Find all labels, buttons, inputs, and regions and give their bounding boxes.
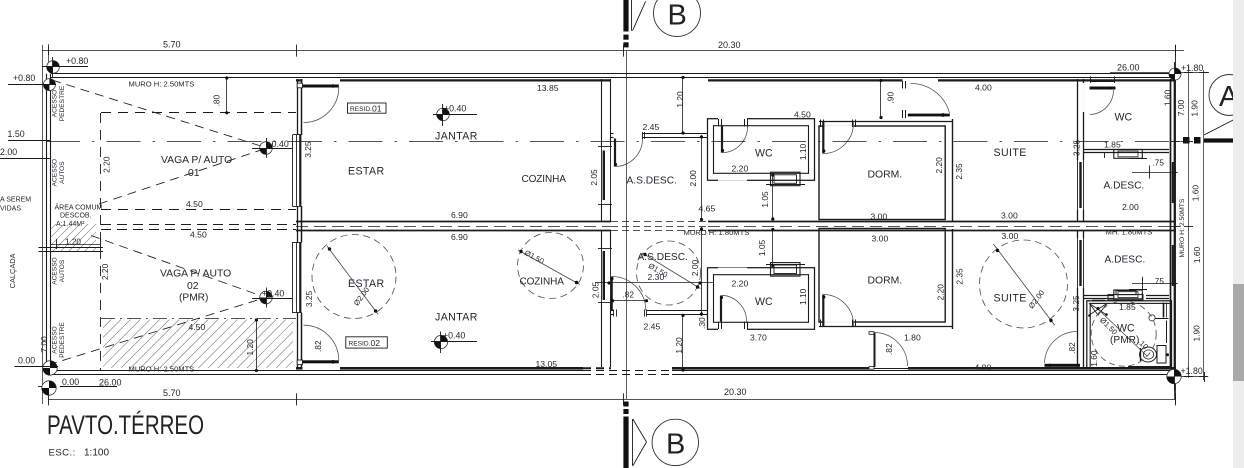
svg-text:WC: WC (1115, 111, 1133, 123)
svg-text:1.05: 1.05 (760, 191, 770, 208)
svg-text:.82: .82 (884, 343, 894, 355)
svg-text:0.00: 0.00 (18, 355, 35, 365)
svg-text:ACESSO: ACESSO (52, 257, 59, 284)
svg-text:.82: .82 (623, 291, 635, 300)
svg-text:ESTAR: ESTAR (348, 166, 385, 178)
svg-text:4.65: 4.65 (699, 204, 716, 214)
svg-text:2.05: 2.05 (589, 169, 599, 186)
svg-text:1.60: 1.60 (1190, 185, 1200, 202)
svg-text:6.90: 6.90 (451, 210, 468, 220)
svg-text:3.70: 3.70 (750, 333, 767, 343)
svg-text:B: B (666, 429, 685, 461)
svg-text:4.50: 4.50 (190, 230, 207, 240)
svg-text:.90: .90 (885, 92, 895, 104)
svg-text:.80: .80 (212, 94, 222, 106)
svg-text:1.10: 1.10 (798, 144, 808, 161)
svg-text:3.25: 3.25 (303, 141, 313, 158)
svg-text:2.00: 2.00 (0, 147, 17, 157)
svg-text:13.85: 13.85 (537, 83, 559, 93)
svg-text:ACESSO: ACESSO (52, 90, 59, 117)
svg-text:(PMR): (PMR) (1110, 335, 1139, 346)
svg-text:+0.80: +0.80 (13, 73, 35, 83)
svg-text:CALÇADA: CALÇADA (8, 253, 17, 288)
svg-text:3.25: 3.25 (304, 291, 314, 308)
svg-text:2.35: 2.35 (954, 163, 964, 180)
svg-text:DORM.: DORM. (868, 276, 903, 287)
svg-text:COZINHA: COZINHA (520, 277, 565, 288)
svg-text:MURO H: 2.50MTS: MURO H: 2.50MTS (1179, 198, 1186, 257)
svg-text:2.20: 2.20 (101, 156, 111, 173)
svg-text:1.60: 1.60 (1089, 350, 1099, 367)
svg-text:1.60: 1.60 (1192, 247, 1202, 264)
svg-text:0.00: 0.00 (62, 377, 79, 387)
svg-text:MH: 1.80MTS: MH: 1.80MTS (1106, 228, 1153, 237)
svg-text:02: 02 (371, 338, 381, 348)
svg-text:3.25: 3.25 (1071, 295, 1081, 312)
svg-text:1.85: 1.85 (1119, 302, 1136, 312)
svg-text:5.70: 5.70 (163, 39, 181, 49)
svg-text:JANTAR: JANTAR (435, 130, 478, 142)
svg-text:A.DESC.: A.DESC. (1105, 255, 1146, 266)
svg-text:7.00: 7.00 (39, 336, 49, 353)
svg-text:1.50: 1.50 (8, 129, 25, 139)
svg-text:7.00: 7.00 (1176, 100, 1186, 117)
svg-text:4.50: 4.50 (794, 110, 811, 120)
svg-text:COZINHA: COZINHA (522, 174, 567, 185)
svg-text:02: 02 (187, 281, 199, 292)
svg-text:1:100: 1:100 (84, 448, 109, 459)
svg-text:1.20: 1.20 (675, 91, 685, 108)
svg-text:AUTOS: AUTOS (59, 259, 66, 282)
svg-text:WC: WC (755, 147, 773, 159)
svg-text:RESID.: RESID. (349, 340, 371, 347)
svg-text:1.05: 1.05 (757, 240, 767, 257)
svg-text:DESCOB.: DESCOB. (60, 212, 92, 219)
svg-text:2.20: 2.20 (732, 278, 749, 288)
svg-text:4.00: 4.00 (975, 83, 992, 93)
svg-text:A.DESC.: A.DESC. (1104, 180, 1145, 191)
svg-text:+0.40: +0.40 (262, 289, 284, 299)
svg-text:4.50: 4.50 (186, 199, 203, 209)
svg-text:WC: WC (755, 296, 773, 308)
svg-text:DORM.: DORM. (868, 170, 903, 181)
svg-text:PEDESTRE: PEDESTRE (59, 85, 66, 121)
svg-text:+1.80: +1.80 (1181, 63, 1203, 73)
svg-text:WC: WC (1117, 322, 1135, 334)
svg-text:26.00: 26.00 (1117, 63, 1140, 73)
svg-text:VAGA P/ AUTO: VAGA P/ AUTO (161, 155, 232, 166)
svg-text:1.60: 1.60 (1163, 90, 1173, 107)
svg-text:3.00: 3.00 (872, 233, 889, 243)
svg-text:ESTAR: ESTAR (348, 278, 385, 290)
svg-text:1.20: 1.20 (674, 337, 684, 354)
svg-text:01: 01 (372, 103, 382, 113)
svg-text:20.30: 20.30 (724, 387, 747, 397)
svg-text:ESC.:: ESC.: (49, 448, 76, 459)
svg-text:.82: .82 (313, 340, 323, 352)
svg-text:SUITE: SUITE (994, 147, 1027, 159)
svg-text:B: B (668, 0, 687, 32)
svg-text:2.30: 2.30 (648, 272, 665, 282)
svg-text:A SEREM: A SEREM (0, 197, 31, 204)
svg-text:A:1.44M²: A:1.44M² (56, 221, 85, 228)
svg-text:+0.40: +0.40 (267, 139, 289, 149)
svg-text:3.25: 3.25 (1072, 139, 1082, 156)
svg-text:1.20: 1.20 (65, 237, 81, 246)
svg-text:2.00: 2.00 (1122, 202, 1139, 212)
svg-text:MURO H: 1.80MTS: MURO H: 1.80MTS (684, 228, 750, 237)
svg-text:2.20: 2.20 (935, 284, 945, 301)
svg-text:ACESSO: ACESSO (52, 326, 59, 353)
svg-text:1.90: 1.90 (1190, 100, 1200, 117)
svg-text:1.20: 1.20 (245, 339, 255, 356)
svg-text:.75: .75 (1153, 277, 1165, 286)
svg-text:+0.40: +0.40 (444, 103, 466, 113)
svg-text:.75: .75 (1153, 159, 1165, 168)
svg-text:2.45: 2.45 (643, 122, 660, 132)
svg-text:3.00: 3.00 (871, 211, 888, 221)
svg-text:2.05: 2.05 (591, 282, 601, 299)
svg-text:5.70: 5.70 (163, 388, 181, 398)
svg-text:SUITE: SUITE (994, 293, 1027, 305)
svg-text:MURO H: 2.50MTS: MURO H: 2.50MTS (129, 79, 195, 88)
svg-text:MURO H: 2.50MTS: MURO H: 2.50MTS (129, 365, 195, 374)
svg-text:3.00: 3.00 (1001, 211, 1018, 221)
svg-text:+1.80: +1.80 (1181, 366, 1203, 376)
svg-text:26.00: 26.00 (99, 378, 122, 388)
svg-text:2.20: 2.20 (934, 157, 944, 174)
svg-text:13.05: 13.05 (536, 359, 558, 369)
svg-text:A.S.DESC.: A.S.DESC. (638, 252, 688, 263)
svg-text:RESID.: RESID. (350, 106, 372, 113)
svg-text:A.S.DESC.: A.S.DESC. (627, 175, 677, 186)
svg-text:1.10: 1.10 (798, 288, 808, 305)
svg-text:01: 01 (188, 168, 200, 179)
svg-text:2.45: 2.45 (644, 321, 661, 331)
svg-text:+0.80: +0.80 (66, 56, 88, 66)
svg-text:VIDAS: VIDAS (0, 206, 21, 213)
svg-text:PAVTO.TÉRREO: PAVTO.TÉRREO (47, 410, 204, 440)
svg-text:1.85: 1.85 (1104, 139, 1121, 149)
svg-text:1.90: 1.90 (1192, 325, 1202, 342)
svg-text:4.50: 4.50 (189, 322, 206, 332)
svg-text:+0.40: +0.40 (443, 330, 465, 340)
svg-text:AUTOS: AUTOS (59, 161, 66, 184)
svg-text:.82: .82 (1067, 342, 1077, 354)
svg-text:2.20: 2.20 (732, 163, 749, 173)
svg-text:3.00: 3.00 (1002, 231, 1019, 241)
svg-text:4.80: 4.80 (975, 362, 992, 372)
svg-text:2.35: 2.35 (954, 268, 964, 285)
svg-text:2.00: 2.00 (690, 260, 700, 277)
svg-text:.30: .30 (697, 317, 707, 329)
svg-text:(PMR): (PMR) (179, 293, 208, 304)
svg-text:ACESSO: ACESSO (52, 159, 59, 186)
svg-text:ÁREA COMUM: ÁREA COMUM (55, 203, 103, 212)
svg-text:1.80: 1.80 (904, 333, 921, 343)
svg-text:JANTAR: JANTAR (435, 311, 478, 323)
svg-text:2.20: 2.20 (100, 263, 110, 280)
svg-text:20.30: 20.30 (718, 40, 741, 50)
svg-text:2.00: 2.00 (688, 170, 698, 187)
svg-text:PEDESTRE: PEDESTRE (59, 322, 66, 358)
svg-text:6.90: 6.90 (451, 232, 468, 242)
svg-text:VAGA P/ AUTO: VAGA P/ AUTO (160, 268, 231, 279)
